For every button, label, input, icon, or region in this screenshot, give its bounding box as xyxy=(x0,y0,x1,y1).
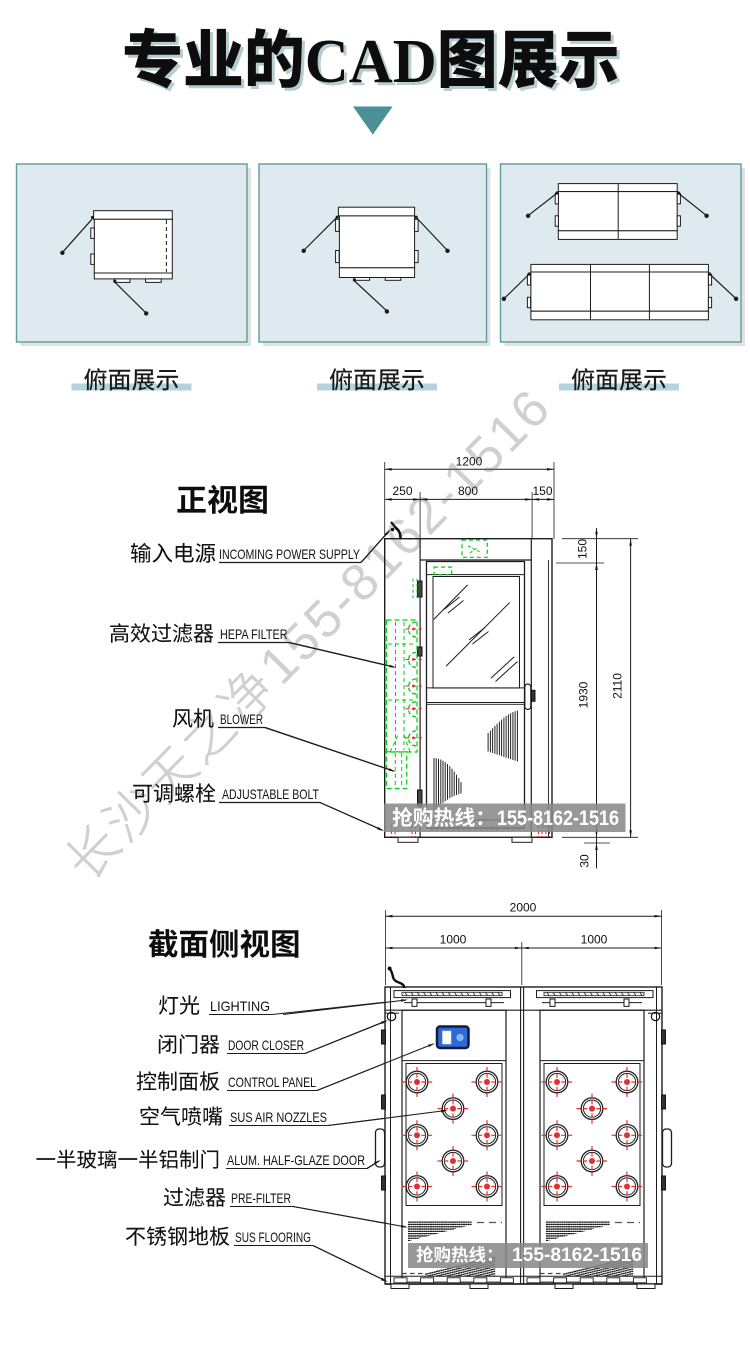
svg-text:ALUM. HALF-GLAZE DOOR: ALUM. HALF-GLAZE DOOR xyxy=(227,1152,365,1168)
svg-text:CAD: CAD xyxy=(305,27,437,96)
svg-text:1930: 1930 xyxy=(577,681,591,708)
svg-text:1000: 1000 xyxy=(581,933,608,947)
svg-text:155-8162-1516: 155-8162-1516 xyxy=(512,1244,642,1266)
svg-text:INCOMING POWER SUPPLY: INCOMING POWER SUPPLY xyxy=(219,546,360,562)
svg-text:30: 30 xyxy=(578,854,592,868)
svg-text:1000: 1000 xyxy=(440,933,467,947)
svg-text:PRE-FILTER: PRE-FILTER xyxy=(231,1190,291,1206)
svg-text:150: 150 xyxy=(532,484,552,498)
svg-text:155-8162-1516: 155-8162-1516 xyxy=(497,807,619,830)
svg-text:LIGHTING: LIGHTING xyxy=(210,998,270,1014)
svg-text:ADJUSTABLE BOLT: ADJUSTABLE BOLT xyxy=(222,786,319,802)
svg-text:DOOR CLOSER: DOOR CLOSER xyxy=(228,1037,304,1053)
svg-text:CONTROL PANEL: CONTROL PANEL xyxy=(228,1074,316,1090)
svg-text:150: 150 xyxy=(576,539,590,559)
svg-text:SUS AIR NOZZLES: SUS AIR NOZZLES xyxy=(230,1109,327,1125)
svg-text:2110: 2110 xyxy=(611,673,625,699)
svg-text:SUS FLOORING: SUS FLOORING xyxy=(235,1229,311,1245)
svg-text:2000: 2000 xyxy=(510,901,537,915)
